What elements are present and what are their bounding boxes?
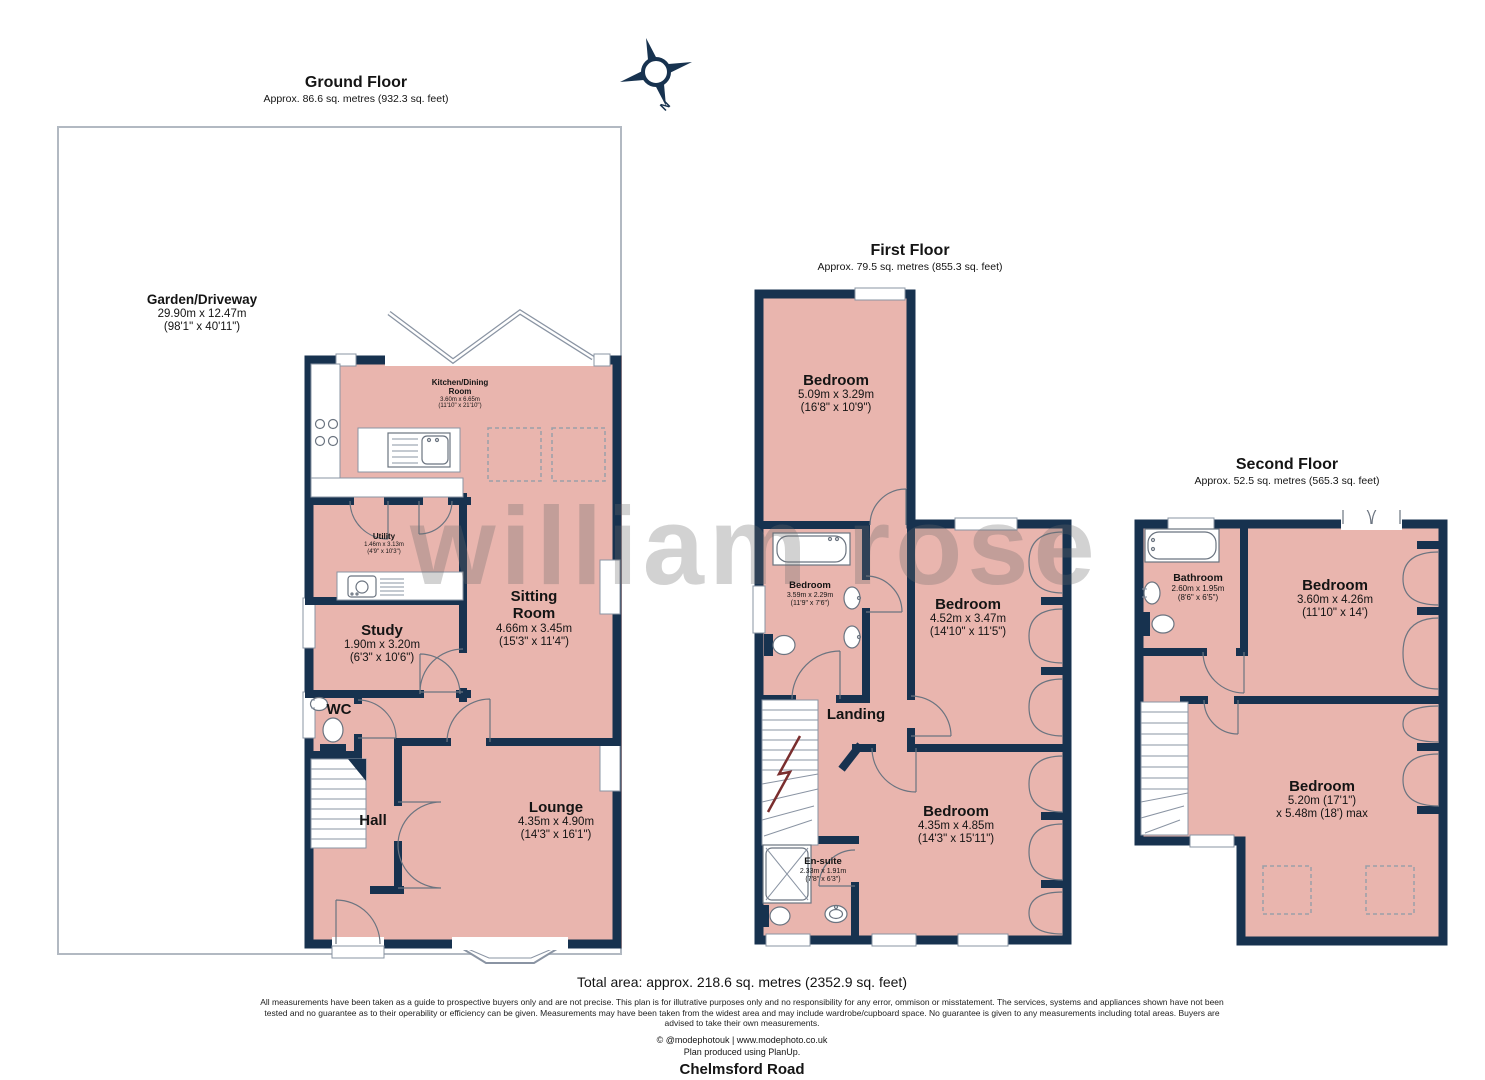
room-label-bathroom: Bathroom 2.60m x 1.95m (8'6" x 6'5") <box>1172 572 1225 602</box>
room-imperial: (4'9" x 10'3") <box>364 549 404 556</box>
floorplan-page: N william rose Ground Floor Approx. 86.6… <box>0 0 1485 1080</box>
room-name: Bedroom <box>918 803 994 820</box>
room-label-bedroom2: Bedroom 3.59m x 2.29m (11'9" x 7'6") <box>787 581 833 608</box>
room-name: Sitting <box>496 588 572 605</box>
room-metric: 2.60m x 1.95m <box>1172 584 1225 593</box>
compass-north-label: N <box>657 98 673 114</box>
second-floor-area: Approx. 52.5 sq. metres (565.3 sq. feet) <box>1194 475 1379 487</box>
room-label-utility: Utility 1.46m x 3.13m (4'9" x 10'3") <box>364 533 404 556</box>
room-name: En-suite <box>800 857 846 868</box>
sink-icon <box>825 906 847 923</box>
room-name: Garden/Driveway <box>147 292 257 308</box>
second-floor-title: Second Floor <box>1236 456 1338 474</box>
room-label-garden: Garden/Driveway 29.90m x 12.47m (98'1" x… <box>147 292 257 334</box>
sink-icon <box>311 698 328 711</box>
room-name: Bedroom <box>930 596 1006 613</box>
room-imperial: (8'6" x 6'5") <box>1172 593 1225 602</box>
room-imperial: (7'8" x 6'3") <box>800 876 846 884</box>
room-name: Utility <box>364 533 404 542</box>
room-imperial: (14'3" x 16'1") <box>518 829 594 842</box>
room-label-landing: Landing <box>827 706 885 723</box>
ground-floor-title: Ground Floor <box>305 74 407 92</box>
room-label-kitchen: Kitchen/Dining Room 3.60m x 6.65m (11'10… <box>432 379 488 410</box>
room-label-ensuite: En-suite 2.33m x 1.91m (7'8" x 6'3") <box>800 857 846 884</box>
room-imperial: (15'3" x 11'4") <box>496 636 572 649</box>
room-metric: 2.33m x 1.91m <box>800 868 846 876</box>
room-metric: 4.66m x 3.45m <box>496 623 572 636</box>
room-imperial: (14'10" x 11'5") <box>930 626 1006 639</box>
bath-icon <box>1145 529 1219 562</box>
room-name: Bedroom <box>798 372 874 389</box>
toilet-icon <box>764 634 795 656</box>
stairs <box>762 700 818 845</box>
stairs <box>311 759 366 848</box>
room-label-bedroom6: Bedroom 5.20m (17'1") x 5.48m (18') max <box>1276 778 1368 822</box>
room-imperial: (6'3" x 10'6") <box>344 652 420 665</box>
room-metric: 4.52m x 3.47m <box>930 613 1006 626</box>
room-label-bedroom3: Bedroom 4.52m x 3.47m (14'10" x 11'5") <box>930 596 1006 640</box>
room-imperial: (16'8" x 10'9") <box>798 402 874 415</box>
first-floor-title: First Floor <box>870 242 949 260</box>
room-name: Room <box>496 605 572 622</box>
room-imperial: x 5.48m (18') max <box>1276 808 1368 821</box>
address-title: Chelmsford Road <box>679 1061 804 1078</box>
kitchen-island-sink <box>358 428 460 472</box>
bath-icon <box>773 533 850 565</box>
room-metric: 1.90m x 3.20m <box>344 639 420 652</box>
room-label-wc: WC <box>327 701 352 718</box>
room-name: Bedroom <box>787 581 833 592</box>
ground-floor-area: Approx. 86.6 sq. metres (932.3 sq. feet) <box>263 93 448 105</box>
room-label-study: Study 1.90m x 3.20m (6'3" x 10'6") <box>344 622 420 666</box>
total-area: Total area: approx. 218.6 sq. metres (23… <box>577 974 907 990</box>
ground-floor-plan <box>50 120 640 980</box>
room-label-bedroom4: Bedroom 4.35m x 4.85m (14'3" x 15'11") <box>918 803 994 847</box>
room-label-lounge: Lounge 4.35m x 4.90m (14'3" x 16'1") <box>518 799 594 843</box>
produced-line: Plan produced using PlanUp. <box>684 1047 801 1057</box>
room-metric: 4.35m x 4.85m <box>918 820 994 833</box>
room-metric: 3.60m x 4.26m <box>1297 594 1373 607</box>
room-label-hall: Hall <box>359 812 387 829</box>
first-floor-area: Approx. 79.5 sq. metres (855.3 sq. feet) <box>817 261 1002 273</box>
room-metric: 3.59m x 2.29m <box>787 592 833 600</box>
stairs <box>1141 702 1188 835</box>
room-metric: 4.35m x 4.90m <box>518 816 594 829</box>
disclaimer-text: All measurements have been taken as a gu… <box>250 997 1235 1029</box>
first-floor-plan <box>745 280 1085 970</box>
room-imperial: (11'9" x 7'6") <box>787 600 833 608</box>
room-metric: 3.60m x 6.65m <box>432 397 488 404</box>
room-imperial: (14'3" x 15'11") <box>918 833 994 846</box>
compass-icon: N <box>600 25 710 125</box>
room-label-bedroom1: Bedroom 5.09m x 3.29m (16'8" x 10'9") <box>798 372 874 416</box>
credit-line: © @modephotouk | www.modephoto.co.uk <box>657 1035 828 1045</box>
utility-counter-sink <box>337 572 463 600</box>
room-metric: 5.09m x 3.29m <box>798 389 874 402</box>
room-name: Bathroom <box>1172 572 1225 584</box>
room-label-sitting-room: Sitting Room 4.66m x 3.45m (15'3" x 11'4… <box>496 588 572 649</box>
room-name: Lounge <box>518 799 594 816</box>
room-metric: 5.20m (17'1") <box>1276 795 1368 808</box>
room-imperial: (11'10" x 14') <box>1297 607 1373 620</box>
room-imperial: (98'1" x 40'11") <box>147 321 257 334</box>
room-name: Bedroom <box>1276 778 1368 795</box>
room-metric: 29.90m x 12.47m <box>147 308 257 321</box>
room-metric: 1.46m x 3.13m <box>364 542 404 549</box>
room-name: Study <box>344 622 420 639</box>
room-imperial: (11'10" x 21'10") <box>432 403 488 410</box>
room-label-bedroom5: Bedroom 3.60m x 4.26m (11'10" x 14') <box>1297 577 1373 621</box>
room-name: Room <box>432 388 488 397</box>
room-name: Bedroom <box>1297 577 1373 594</box>
toilet-icon <box>761 905 790 927</box>
